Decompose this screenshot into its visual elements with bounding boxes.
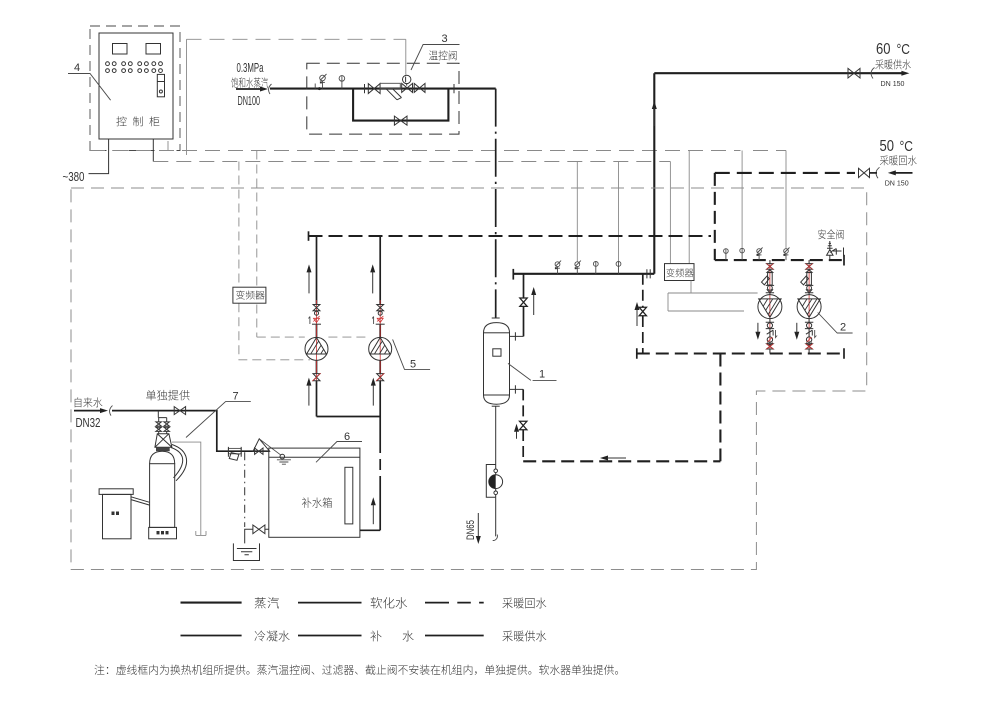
svg-text:0.3MPa: 0.3MPa — [237, 60, 264, 75]
svg-text:DN 150: DN 150 — [885, 178, 909, 187]
svg-text:°C: °C — [897, 41, 911, 58]
svg-text:DN65: DN65 — [465, 520, 477, 540]
svg-text:DN 150: DN 150 — [881, 79, 905, 88]
svg-text:1: 1 — [539, 369, 545, 381]
svg-text:50: 50 — [880, 138, 895, 155]
svg-text:2: 2 — [840, 322, 846, 334]
svg-text:3: 3 — [442, 33, 448, 45]
svg-text:DN32: DN32 — [76, 416, 101, 430]
svg-text:7: 7 — [233, 391, 239, 403]
svg-text:°C: °C — [900, 138, 914, 155]
svg-text:DN100: DN100 — [238, 94, 261, 108]
svg-text:4: 4 — [74, 62, 80, 74]
svg-text:~380: ~380 — [63, 169, 85, 184]
svg-text:60: 60 — [876, 41, 891, 58]
svg-text:5: 5 — [410, 359, 416, 371]
